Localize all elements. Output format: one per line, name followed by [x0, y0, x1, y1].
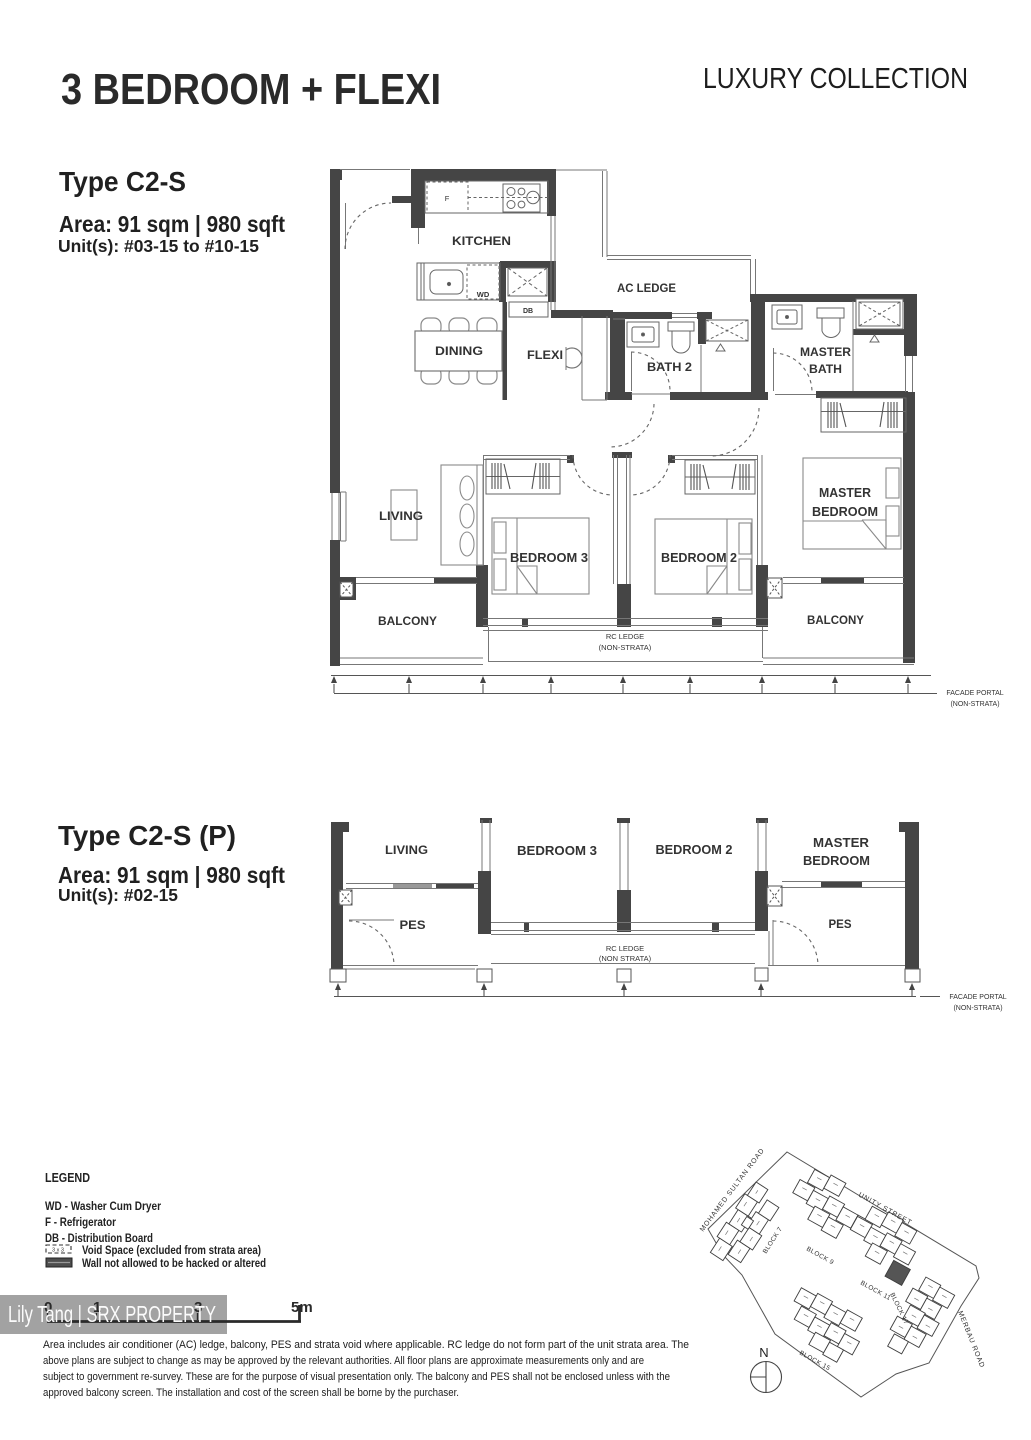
- svg-text:subject to government re-surve: subject to government re-survey. These a…: [43, 1371, 670, 1383]
- svg-text:Unit(s): #02-15: Unit(s): #02-15: [58, 885, 178, 905]
- svg-text:DINING: DINING: [435, 344, 483, 358]
- svg-text:MASTER: MASTER: [800, 345, 851, 359]
- svg-text:(NON-STRATA): (NON-STRATA): [953, 1005, 1002, 1012]
- svg-text:BEDROOM 2: BEDROOM 2: [661, 551, 737, 565]
- svg-text:LUXURY COLLECTION: LUXURY COLLECTION: [703, 63, 968, 95]
- svg-text:BEDROOM 3: BEDROOM 3: [510, 551, 588, 565]
- svg-text:3 x 3: 3 x 3: [52, 1248, 64, 1254]
- svg-text:PES: PES: [829, 917, 852, 931]
- svg-text:BALCONY: BALCONY: [807, 613, 864, 627]
- svg-text:5m: 5m: [291, 1299, 313, 1316]
- svg-text:Void Space (excluded from stra: Void Space (excluded from strata area): [82, 1243, 261, 1257]
- svg-text:FACADE PORTAL: FACADE PORTAL: [946, 690, 1003, 697]
- svg-text:WD: WD: [477, 290, 490, 299]
- svg-text:LIVING: LIVING: [385, 843, 428, 857]
- svg-text:approved balcony screen. The i: approved balcony screen. The installatio…: [43, 1387, 459, 1399]
- svg-text:3 BEDROOM + FLEXI: 3 BEDROOM + FLEXI: [61, 65, 441, 114]
- svg-text:F: F: [445, 194, 450, 203]
- svg-text:RC LEDGE: RC LEDGE: [606, 632, 644, 641]
- svg-text:(NON STRATA): (NON STRATA): [599, 954, 652, 963]
- svg-text:BEDROOM: BEDROOM: [803, 854, 870, 868]
- svg-text:Wall not allowed to be hacked: Wall not allowed to be hacked or altered: [82, 1256, 266, 1270]
- svg-text:N: N: [759, 1345, 768, 1360]
- svg-text:Area includes air conditioner: Area includes air conditioner (AC) ledge…: [43, 1339, 689, 1351]
- svg-text:F - Refrigerator: F - Refrigerator: [45, 1215, 116, 1229]
- svg-text:MERBAU ROAD: MERBAU ROAD: [956, 1310, 985, 1369]
- svg-text:WD - Washer Cum Dryer: WD - Washer Cum Dryer: [45, 1199, 161, 1213]
- svg-text:BLOCK 7: BLOCK 7: [762, 1226, 784, 1255]
- svg-text:LIVING: LIVING: [379, 509, 423, 523]
- svg-text:FLEXI: FLEXI: [527, 348, 563, 362]
- svg-text:(NON-STRATA): (NON-STRATA): [950, 701, 999, 708]
- svg-text:BEDROOM 2: BEDROOM 2: [656, 843, 733, 857]
- svg-text:KITCHEN: KITCHEN: [452, 234, 511, 248]
- svg-text:BALCONY: BALCONY: [378, 614, 437, 628]
- svg-text:LEGEND: LEGEND: [45, 1170, 90, 1185]
- svg-text:BLOCK 11: BLOCK 11: [859, 1280, 892, 1303]
- svg-text:FACADE PORTAL: FACADE PORTAL: [949, 994, 1006, 1001]
- svg-text:BATH 2: BATH 2: [647, 360, 692, 374]
- svg-text:Area: 91 sqm | 980 sqft: Area: 91 sqm | 980 sqft: [59, 211, 285, 237]
- svg-text:BEDROOM 3: BEDROOM 3: [517, 844, 597, 858]
- svg-text:above plans are subject to cha: above plans are subject to change as may…: [43, 1355, 644, 1367]
- svg-text:DB: DB: [523, 308, 533, 315]
- svg-text:PES: PES: [400, 918, 426, 932]
- svg-text:RC LEDGE: RC LEDGE: [606, 944, 644, 953]
- svg-text:AC LEDGE: AC LEDGE: [617, 281, 676, 295]
- svg-text:Type C2-S (P): Type C2-S (P): [58, 820, 236, 851]
- svg-text:(NON-STRATA): (NON-STRATA): [599, 643, 652, 652]
- svg-text:MASTER: MASTER: [813, 836, 869, 850]
- svg-text:BEDROOM: BEDROOM: [812, 505, 878, 519]
- svg-text:BATH: BATH: [809, 362, 842, 376]
- svg-text:Unit(s): #03-15 to #10-15: Unit(s): #03-15 to #10-15: [58, 236, 259, 256]
- svg-text:BLOCK 9: BLOCK 9: [805, 1246, 835, 1267]
- svg-text:MASTER: MASTER: [819, 486, 871, 500]
- svg-text:Type C2-S: Type C2-S: [59, 166, 186, 197]
- svg-text:Lily Tang | SRX PROPERTY: Lily Tang | SRX PROPERTY: [8, 1301, 216, 1327]
